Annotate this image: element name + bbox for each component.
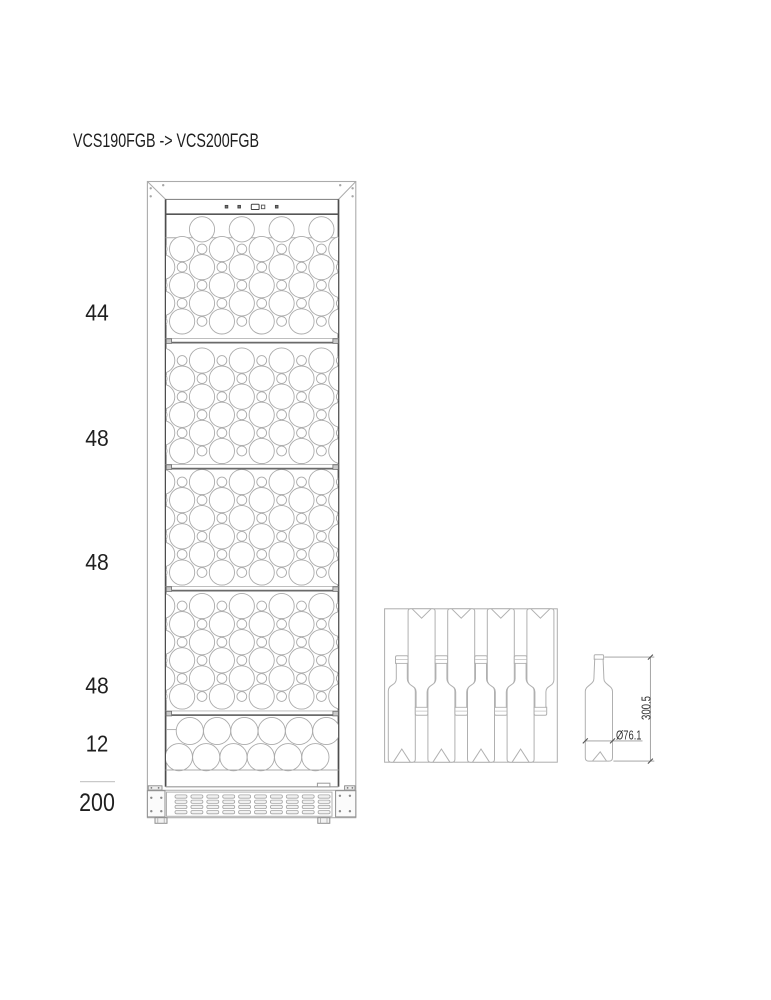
svg-text:200: 200: [79, 789, 115, 817]
svg-text:VCS190FGB -> VCS200FGB: VCS190FGB -> VCS200FGB: [73, 131, 259, 152]
svg-text:48: 48: [85, 549, 109, 575]
svg-text:Ø76.1: Ø76.1: [616, 729, 642, 743]
svg-text:12: 12: [86, 731, 109, 757]
svg-text:300.5: 300.5: [639, 696, 653, 720]
svg-text:48: 48: [85, 673, 109, 699]
svg-text:48: 48: [85, 425, 109, 451]
svg-text:44: 44: [85, 300, 109, 326]
